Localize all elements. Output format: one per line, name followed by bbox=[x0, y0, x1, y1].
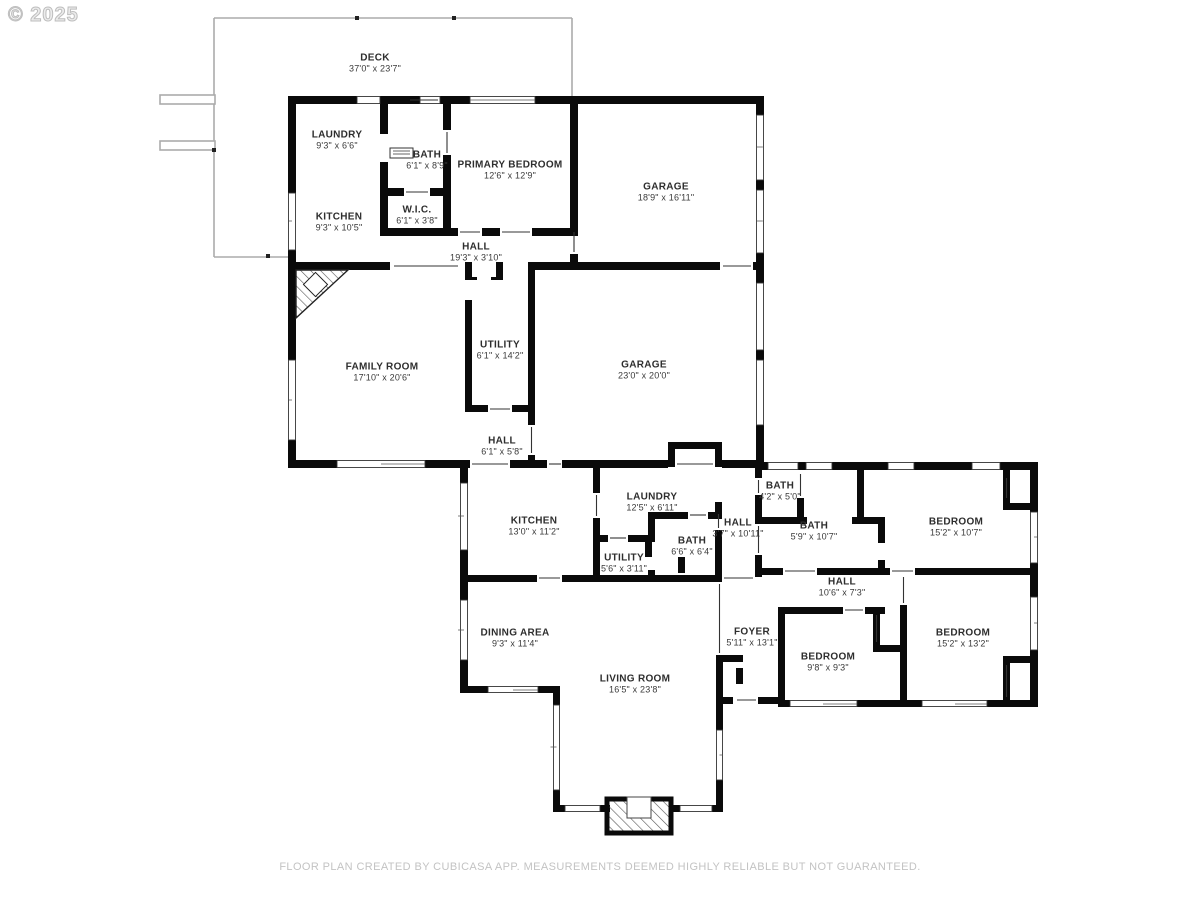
floorplan-walls bbox=[0, 0, 1200, 900]
deck-ticks bbox=[212, 16, 456, 258]
footer-disclaimer: FLOOR PLAN CREATED BY CUBICASA APP. MEAS… bbox=[0, 861, 1200, 873]
deck-outline bbox=[160, 18, 572, 257]
entry-stoop bbox=[607, 797, 671, 833]
door-lines bbox=[394, 100, 1007, 700]
window-midlines bbox=[289, 100, 1037, 755]
sink-icon bbox=[390, 148, 413, 158]
floorplan-canvas: © 2025 bbox=[0, 0, 1200, 900]
copyright-watermark: © 2025 bbox=[8, 4, 79, 27]
windows bbox=[289, 97, 1038, 812]
fireplace-hatch bbox=[296, 270, 348, 318]
